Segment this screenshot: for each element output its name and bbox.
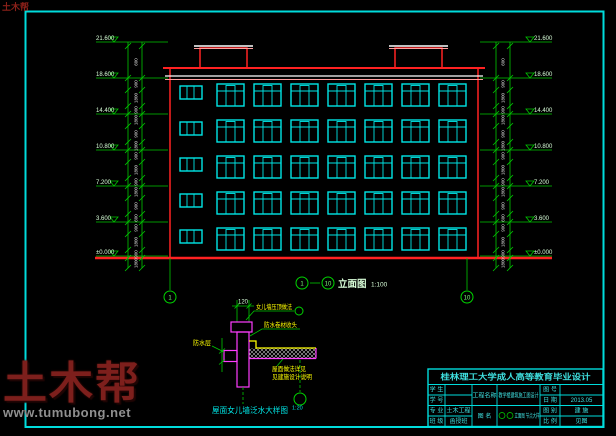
stair-window <box>180 230 202 243</box>
chain-dimension: 1800 <box>501 92 506 103</box>
chain-dimension: 900 <box>134 80 139 88</box>
detail-dimension-120: 120 <box>238 300 249 306</box>
tb-label-project: 工程名称 <box>472 392 496 400</box>
tb-label-class: 班 级 <box>430 417 444 425</box>
left-dimension-chain: 21.60018.60014.40010.8007.2003.600±0.000… <box>96 36 168 271</box>
window <box>328 84 355 106</box>
tb-label-date: 日 期 <box>543 396 557 404</box>
window <box>365 228 392 250</box>
window <box>254 156 281 178</box>
watermark-url: www.tumubong.net <box>3 405 131 420</box>
chain-dimension: 1800 <box>501 164 506 175</box>
stair-window <box>180 122 202 135</box>
window <box>402 120 429 142</box>
window <box>291 156 318 178</box>
chain-dimension: 600 <box>501 214 506 222</box>
chain-dimension: 900 <box>501 250 506 258</box>
chain-dimension: 1800 <box>501 114 506 125</box>
parapet-coping <box>231 322 252 332</box>
axis-number-end: 10 <box>325 282 332 288</box>
window <box>328 156 355 178</box>
window <box>365 192 392 214</box>
window <box>439 84 466 106</box>
detail-caption: 屋面女儿墙泛水大样图 <box>212 405 288 415</box>
annotation-coping: 女儿墙压顶做法 <box>256 302 292 311</box>
tb-label-drawing-name: 图 名 <box>478 412 492 420</box>
chain-dimension: 1800 <box>134 236 139 247</box>
tb-label-drawing-no: 图 号 <box>543 387 557 394</box>
elevation-level: 3.600 <box>534 216 550 222</box>
window <box>217 156 244 178</box>
window <box>328 228 355 250</box>
chain-dimension: 900 <box>501 224 506 232</box>
chain-dimension: 900 <box>501 80 506 88</box>
window <box>439 120 466 142</box>
elevation-level: ±0.000 <box>96 250 115 256</box>
window <box>217 192 244 214</box>
window <box>291 120 318 142</box>
titleblock-title: 桂林理工大学成人高等教育毕业设计 <box>439 372 590 382</box>
elevation-level: 21.600 <box>96 36 115 42</box>
chain-dimension: 900 <box>134 224 139 232</box>
chain-dimension: 1800 <box>501 186 506 197</box>
elevation-scale: 1:100 <box>371 282 388 289</box>
elevation-level: 14.400 <box>96 108 115 114</box>
tb-value-drawing-name: 立面图 节点大样 <box>515 412 540 420</box>
roof-bulkhead-right <box>395 48 442 68</box>
chain-dimension: 1800 <box>134 164 139 175</box>
window <box>365 84 392 106</box>
window <box>291 192 318 214</box>
window <box>328 120 355 142</box>
stair-window <box>180 158 202 171</box>
watermark-brand: 土木帮 <box>3 347 141 411</box>
elevation-level: 18.600 <box>96 72 115 78</box>
window <box>254 192 281 214</box>
elevation-level: 7.200 <box>96 180 112 186</box>
axis-bubble-number: 10 <box>464 296 471 302</box>
tb-label-scale: 比 例 <box>543 417 557 425</box>
parapet-detail: 120 女儿墙压顶做法 防水卷材收头 屋面做法详见 见建施设计说明 防水层 屋面… <box>193 300 316 416</box>
chain-dimension: 1800 <box>501 236 506 247</box>
window <box>402 84 429 106</box>
tb-label-student: 学 生 <box>430 386 444 394</box>
window <box>328 192 355 214</box>
elevation-level: 18.600 <box>534 72 553 78</box>
chain-dimension: 900 <box>134 130 139 138</box>
chain-dimension: 900 <box>501 152 506 160</box>
window <box>291 84 318 106</box>
window <box>217 120 244 142</box>
title-block: 桂林理工大学成人高等教育毕业设计 学 生 工程名称 教学楼建筑施工图设计 图 号… <box>428 369 603 427</box>
tb-value-scale: 见图 <box>575 418 587 425</box>
roof-slab <box>249 349 316 359</box>
tb-value-date: 2013.05 <box>571 398 593 404</box>
elevation-level: 10.800 <box>534 144 553 150</box>
tb-axis-circle-1 <box>499 413 505 419</box>
parapet-wall <box>237 332 249 387</box>
stair-window <box>180 86 202 99</box>
window <box>217 84 244 106</box>
annotation-waterproof: 防水层 <box>193 338 211 347</box>
stair-window <box>180 194 202 207</box>
tb-label-student-id: 学 号 <box>430 396 444 404</box>
axis-grid-bubbles: 110 <box>164 258 473 303</box>
cad-drawing-canvas: 21.60018.60014.40010.8007.2003.600±0.000… <box>0 0 616 436</box>
chain-dimension: 600 <box>134 58 139 66</box>
chain-dimension: 1800 <box>134 140 139 151</box>
window <box>439 228 466 250</box>
chain-dimension: 600 <box>501 58 506 66</box>
roof-bulkhead-left <box>200 48 247 68</box>
window <box>254 120 281 142</box>
chain-dimension: 900 <box>134 250 139 258</box>
detail-scale: 1:20 <box>292 406 303 412</box>
chain-dimension: 1800 <box>134 114 139 125</box>
chain-dimension: 1800 <box>501 140 506 151</box>
annotation-flashing: 防水卷材收头 <box>264 320 297 329</box>
elevation-level: 10.800 <box>96 144 115 150</box>
chain-dimension: 900 <box>134 152 139 160</box>
chain-dimension: 1800 <box>134 257 139 268</box>
chain-dimension: 900 <box>134 106 139 114</box>
elevation-level: 14.400 <box>534 108 553 114</box>
window <box>439 192 466 214</box>
tb-label-category: 图 别 <box>543 407 557 415</box>
window <box>254 84 281 106</box>
tb-axis-circle-10 <box>507 413 513 419</box>
window <box>254 228 281 250</box>
drip-edge <box>224 351 237 362</box>
chain-dimension: 900 <box>134 178 139 186</box>
annotation-roof-1: 屋面做法详见 <box>272 364 306 373</box>
elevation-level: ±0.000 <box>534 250 553 256</box>
tb-value-project: 教学楼建筑施工图设计 <box>499 392 539 400</box>
chain-dimension: 1800 <box>134 186 139 197</box>
chain-dimension: 1800 <box>501 257 506 268</box>
window <box>217 228 244 250</box>
tb-value-major: 土木工程 <box>447 407 471 415</box>
right-dimension-chain: 21.60018.60014.40010.8007.2003.600±0.000… <box>480 36 553 271</box>
axis-number-start: 1 <box>300 282 304 288</box>
chain-dimension: 900 <box>501 202 506 210</box>
elevation-title: 立面图 <box>338 278 367 290</box>
window <box>365 120 392 142</box>
elevation-level: 3.600 <box>96 216 112 222</box>
window <box>402 192 429 214</box>
window <box>402 156 429 178</box>
tb-label-major: 专 业 <box>430 407 444 415</box>
window <box>402 228 429 250</box>
flashing-line <box>249 341 316 348</box>
tb-value-category: 建 施 <box>575 407 589 415</box>
detail-ref-circle <box>295 307 303 315</box>
elevation-level: 7.200 <box>534 180 550 186</box>
annotation-roof-2: 见建施设计说明 <box>272 372 312 381</box>
detail-axis-bubble <box>294 393 306 405</box>
window <box>439 156 466 178</box>
elevation-caption: 1 10 立面图 1:100 <box>296 277 388 290</box>
chain-dimension: 900 <box>501 106 506 114</box>
chain-dimension: 900 <box>501 178 506 186</box>
chain-dimension: 900 <box>501 130 506 138</box>
axis-bubble-number: 1 <box>168 296 172 302</box>
window <box>291 228 318 250</box>
chain-dimension: 900 <box>134 202 139 210</box>
chain-dimension: 1800 <box>134 92 139 103</box>
chain-dimension: 600 <box>134 214 139 222</box>
windows-grid <box>180 84 466 250</box>
window <box>365 156 392 178</box>
tb-value-class: 函授班 <box>449 417 467 425</box>
elevation-level: 21.600 <box>534 36 553 42</box>
corner-watermark: 土木帮 <box>2 0 29 13</box>
